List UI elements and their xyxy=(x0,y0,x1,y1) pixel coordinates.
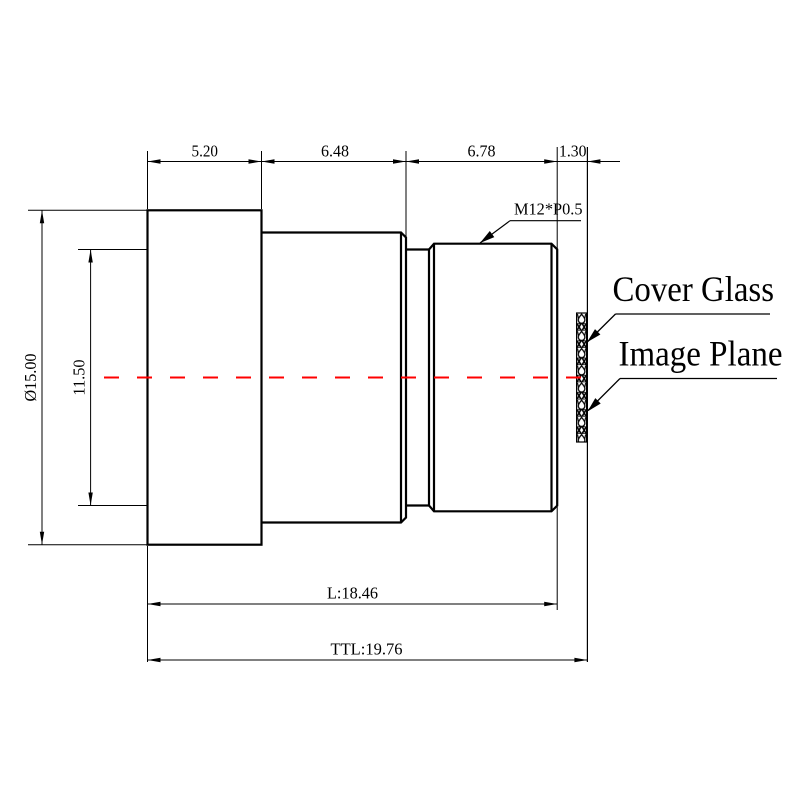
svg-text:11.50: 11.50 xyxy=(70,359,89,395)
svg-text:1.30: 1.30 xyxy=(559,142,587,161)
svg-text:L:18.46: L:18.46 xyxy=(327,584,378,603)
svg-text:6.48: 6.48 xyxy=(321,142,349,161)
svg-text:Image Plane: Image Plane xyxy=(619,334,783,374)
svg-text:6.78: 6.78 xyxy=(468,142,496,161)
svg-text:Cover Glass: Cover Glass xyxy=(613,269,775,309)
svg-text:Ø15.00: Ø15.00 xyxy=(21,354,40,402)
svg-text:TTL:19.76: TTL:19.76 xyxy=(331,640,403,659)
svg-text:5.20: 5.20 xyxy=(192,142,219,161)
svg-text:M12*P0.5: M12*P0.5 xyxy=(514,200,583,219)
